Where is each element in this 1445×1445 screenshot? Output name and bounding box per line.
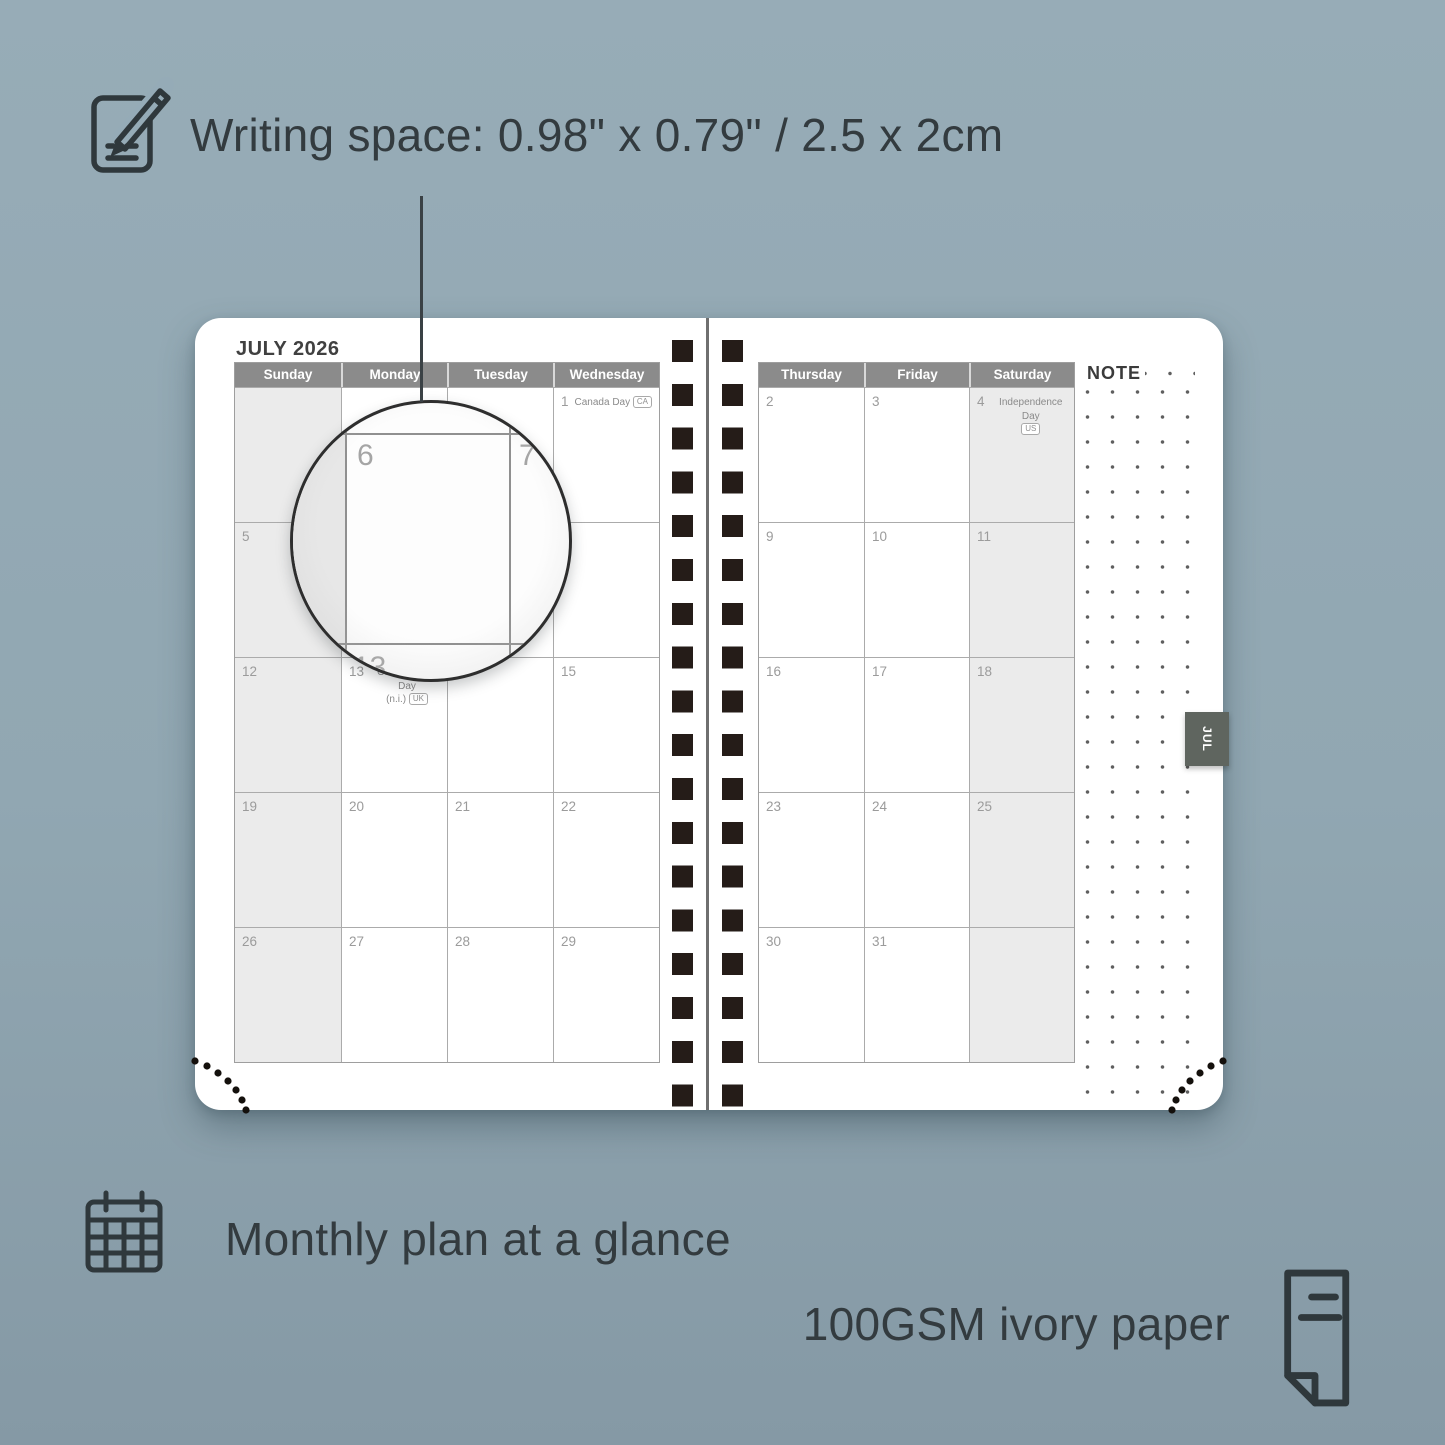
calendar-cell: 9 bbox=[759, 522, 864, 657]
day-number: 10 bbox=[872, 529, 887, 544]
calendar-cell: 28 bbox=[447, 927, 553, 1062]
day-number: 2 bbox=[766, 394, 774, 409]
lens-grid-line bbox=[509, 403, 511, 679]
day-number: 1 bbox=[561, 394, 569, 409]
planner-notebook: JULY 2026 SundayMondayTuesdayWednesday 1… bbox=[195, 318, 1223, 1110]
month-title: JULY 2026 bbox=[236, 338, 339, 361]
calendar-cell: 31 bbox=[864, 927, 969, 1062]
lens-day-number: 6 bbox=[357, 439, 374, 473]
day-number: 4 bbox=[977, 394, 985, 409]
day-number: 30 bbox=[766, 934, 781, 949]
day-number: 3 bbox=[872, 394, 880, 409]
calendar-cell: 29 bbox=[553, 927, 659, 1062]
lens-weekend-band bbox=[293, 403, 347, 679]
calendar-cell: 21 bbox=[447, 792, 553, 927]
lens-day-number: 7 bbox=[519, 439, 536, 473]
calendar-cell: 30 bbox=[759, 927, 864, 1062]
note-pencil-icon bbox=[84, 70, 176, 178]
calendar-cell: 23 bbox=[759, 792, 864, 927]
pointer-line bbox=[420, 196, 423, 402]
day-number: 29 bbox=[561, 934, 576, 949]
weekday-header: Thursday bbox=[759, 363, 864, 387]
day-number: 17 bbox=[872, 664, 887, 679]
spiral-binding-right bbox=[722, 340, 743, 1107]
calendar-cell: 18 bbox=[969, 657, 1074, 792]
day-number: 26 bbox=[242, 934, 257, 949]
lens-grid-line bbox=[293, 643, 569, 645]
calendar-cell: 1Canada Day CA bbox=[553, 387, 659, 522]
day-number: 25 bbox=[977, 799, 992, 814]
calendar-cell bbox=[969, 927, 1074, 1062]
calendar-cell: 11 bbox=[969, 522, 1074, 657]
day-number: 19 bbox=[242, 799, 257, 814]
writing-space-label: Writing space: 0.98" x 0.79" / 2.5 x 2cm bbox=[190, 108, 1003, 162]
weekday-header: Saturday bbox=[969, 363, 1074, 387]
calendar-cell: 3 bbox=[864, 387, 969, 522]
calendar-cell: 17 bbox=[864, 657, 969, 792]
weekday-header: Monday bbox=[341, 363, 447, 387]
perforation-dots-left bbox=[190, 1053, 255, 1123]
country-badge: CA bbox=[633, 396, 652, 408]
calendar-cell: 4Independence Day US bbox=[969, 387, 1074, 522]
day-number: 28 bbox=[455, 934, 470, 949]
calendar-cell: 15 bbox=[553, 657, 659, 792]
month-tab-jul: JUL bbox=[1185, 712, 1229, 766]
weekday-header: Sunday bbox=[235, 363, 341, 387]
holiday-label: Canada Day CA bbox=[575, 396, 653, 410]
weekday-header: Tuesday bbox=[447, 363, 553, 387]
day-number: 23 bbox=[766, 799, 781, 814]
calendar-cell: 16 bbox=[759, 657, 864, 792]
day-number: 16 bbox=[766, 664, 781, 679]
perforation-dots-right bbox=[1163, 1053, 1228, 1123]
calendar-cell: 25 bbox=[969, 792, 1074, 927]
calendar-cell: 24 bbox=[864, 792, 969, 927]
day-number: 12 bbox=[242, 664, 257, 679]
lens-grid-line bbox=[293, 433, 569, 435]
country-badge: US bbox=[1021, 423, 1040, 435]
day-number: 27 bbox=[349, 934, 364, 949]
lens-day-number: 13 bbox=[353, 651, 386, 682]
note-dot-grid bbox=[1145, 361, 1195, 386]
calendar-grid-icon bbox=[80, 1188, 168, 1276]
calendar-cell: 22 bbox=[553, 792, 659, 927]
day-number: 15 bbox=[561, 664, 576, 679]
calendar-cell: 20 bbox=[341, 792, 447, 927]
day-number: 20 bbox=[349, 799, 364, 814]
note-label: NOTE bbox=[1087, 363, 1141, 384]
calendar-cell: 26 bbox=[235, 927, 341, 1062]
day-number: 5 bbox=[242, 529, 250, 544]
country-badge: UK bbox=[409, 693, 428, 705]
calendar-right-page: ThursdayFridaySaturday 234Independence D… bbox=[758, 362, 1075, 1063]
calendar-cell: 2 bbox=[759, 387, 864, 522]
day-number: 31 bbox=[872, 934, 887, 949]
paper-label: 100GSM ivory paper bbox=[803, 1297, 1230, 1351]
day-number: 9 bbox=[766, 529, 774, 544]
day-number: 24 bbox=[872, 799, 887, 814]
calendar-cell: 10 bbox=[864, 522, 969, 657]
monthly-plan-label: Monthly plan at a glance bbox=[225, 1212, 731, 1266]
magnifier-lens: 6 7 13 bbox=[290, 400, 572, 682]
day-number: 21 bbox=[455, 799, 470, 814]
weekday-header: Friday bbox=[864, 363, 969, 387]
calendar-cell: 19 bbox=[235, 792, 341, 927]
page-seam bbox=[706, 318, 709, 1110]
holiday-label: Independence Day US bbox=[991, 396, 1071, 437]
month-tab-label: JUL bbox=[1200, 726, 1214, 752]
day-number: 11 bbox=[977, 529, 991, 544]
paper-sheet-icon bbox=[1274, 1266, 1356, 1410]
spiral-binding-left bbox=[672, 340, 693, 1107]
calendar-cell: 27 bbox=[341, 927, 447, 1062]
weekday-header: Wednesday bbox=[553, 363, 659, 387]
note-dot-grid bbox=[1075, 386, 1200, 1098]
day-number: 22 bbox=[561, 799, 576, 814]
day-number: 18 bbox=[977, 664, 992, 679]
